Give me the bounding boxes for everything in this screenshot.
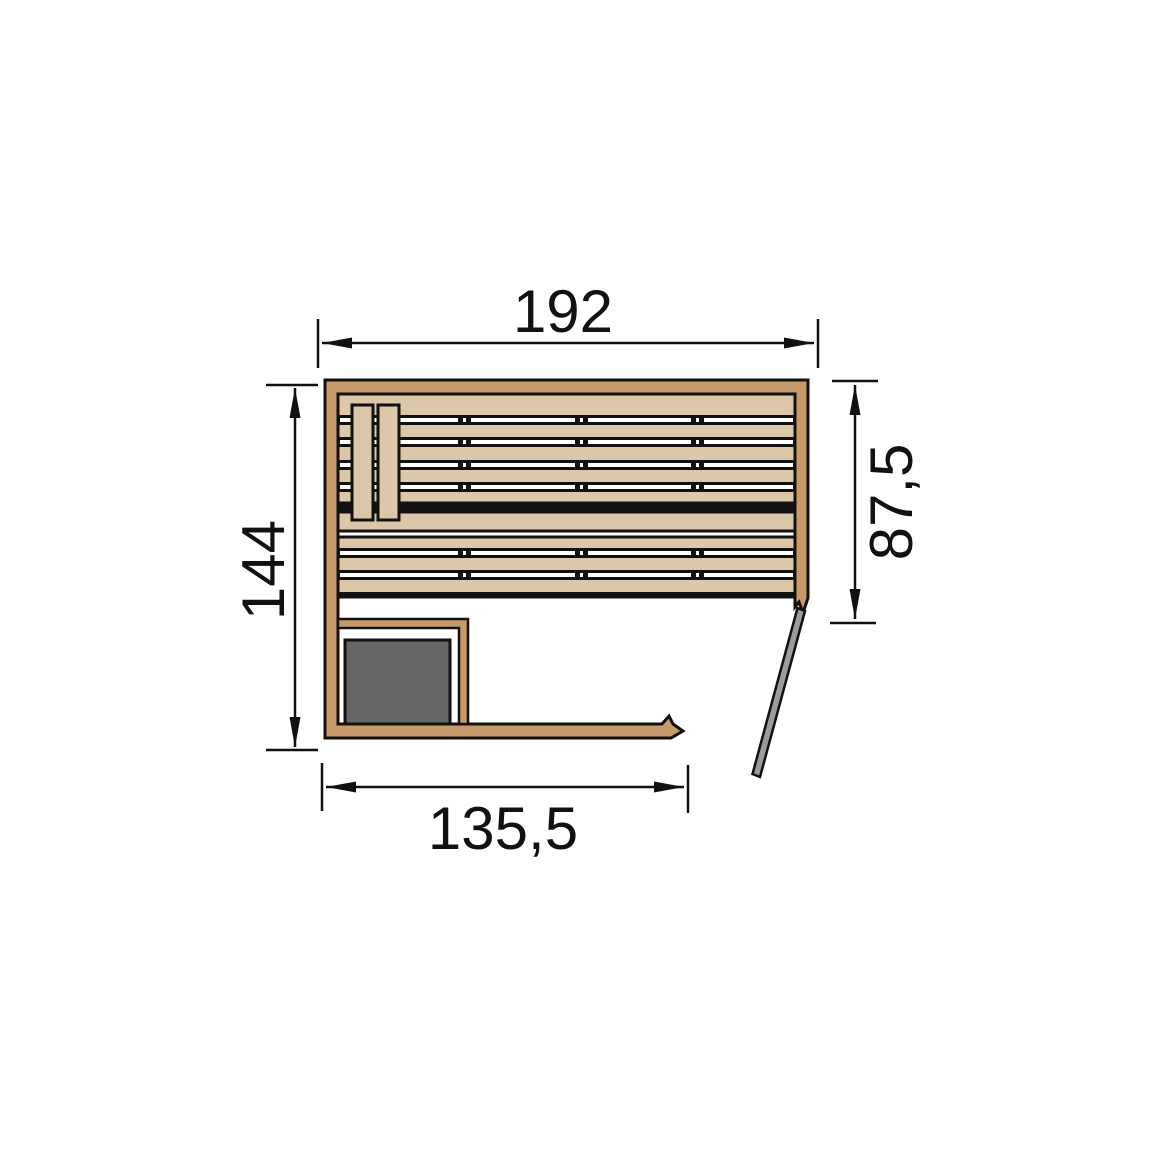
dimension-label-left-height: 144 bbox=[230, 520, 297, 620]
floor-plan-canvas: 192 144 87,5 135,5 bbox=[0, 0, 1160, 1160]
door bbox=[753, 608, 806, 777]
upper-bench-apron-board bbox=[338, 512, 795, 531]
slat-gap bbox=[338, 548, 795, 558]
arrowhead-up bbox=[290, 388, 301, 418]
dimension-label-bottom-front: 135,5 bbox=[428, 795, 578, 862]
slat-gap bbox=[338, 570, 795, 580]
slat-gap bbox=[338, 415, 795, 425]
dimension-label-top-width: 192 bbox=[513, 278, 613, 345]
dimension-bottom-front: 135,5 bbox=[322, 763, 688, 862]
dimension-top-width: 192 bbox=[318, 278, 818, 368]
arrowhead-right bbox=[784, 338, 814, 349]
heater bbox=[345, 640, 450, 724]
dimension-left-height: 144 bbox=[230, 385, 318, 750]
arrowhead-down bbox=[290, 717, 301, 747]
dimension-label-right-side: 87,5 bbox=[858, 444, 925, 561]
backrest-board bbox=[378, 405, 399, 520]
slat-gap bbox=[338, 437, 795, 447]
slat-gap bbox=[338, 460, 795, 470]
sauna-floor-plan-diagram: 192 144 87,5 135,5 bbox=[0, 0, 1160, 1160]
dimension-right-side: 87,5 bbox=[830, 381, 925, 623]
arrowhead-up bbox=[850, 385, 861, 415]
arrowhead-down bbox=[850, 589, 861, 619]
backrest-board bbox=[352, 405, 373, 520]
arrowhead-left bbox=[322, 338, 352, 349]
door-leaf bbox=[753, 608, 806, 777]
benches bbox=[338, 394, 795, 598]
lower-bench-panel bbox=[338, 537, 795, 597]
heater-area bbox=[338, 619, 468, 724]
lower-bench-front-edge bbox=[338, 592, 795, 598]
arrowhead-left bbox=[326, 782, 356, 793]
slat-gap bbox=[338, 482, 795, 492]
arrowhead-right bbox=[654, 782, 684, 793]
